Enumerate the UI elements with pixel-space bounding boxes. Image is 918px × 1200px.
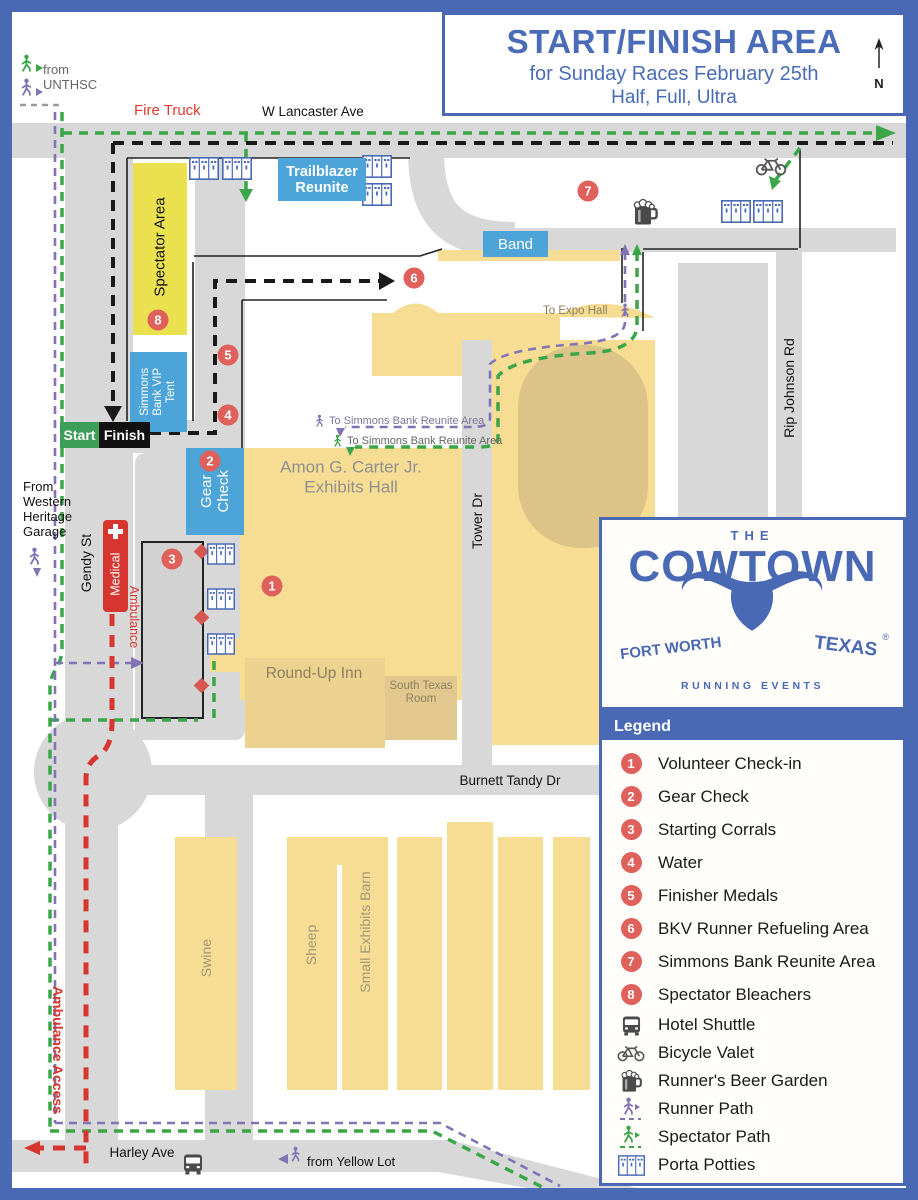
spectator-walker-icon — [23, 55, 31, 71]
legend-marker-7: 7 — [621, 951, 642, 972]
map-marker-6: 6 — [404, 268, 425, 289]
map-marker-3: 3 — [162, 549, 183, 570]
legend-marker-8: 8 — [621, 984, 642, 1005]
map-marker-5: 5 — [218, 345, 239, 366]
legend-label: Gear Check — [658, 787, 749, 807]
from-western-heritage-label: From Western Heritage Garage — [23, 480, 72, 540]
spectator-path-icon — [619, 1125, 643, 1149]
legend-marker-3: 3 — [621, 819, 642, 840]
street-harley: Harley Ave — [109, 1145, 174, 1161]
runner-walker-icon — [23, 79, 31, 95]
legend-label: Spectator Path — [658, 1127, 770, 1147]
legend: Legend 1 Volunteer Check-in 2 Gear Check… — [599, 710, 906, 1186]
small-exhibits-barn-label: Small Exhibits Barn — [357, 871, 373, 992]
logo-registered: ® — [882, 632, 889, 642]
spectator-walker-icon — [335, 435, 340, 447]
legend-item-spectator-bleachers: 8 Spectator Bleachers — [602, 978, 903, 1011]
legend-item-bicycle-valet: Bicycle Valet — [602, 1039, 903, 1067]
runner-path-icon — [619, 1097, 643, 1121]
legend-item-volunteer-checkin: 1 Volunteer Check-in — [602, 747, 903, 780]
page-title: START/FINISH AREA — [445, 23, 903, 61]
logo-state: TEXAS — [813, 632, 879, 662]
ambulance-label: Ambulance — [127, 586, 141, 649]
roundup-inn-label: Round-Up Inn — [266, 665, 363, 683]
from-unthsc-label: from UNTHSC — [43, 63, 97, 93]
legend-label: Starting Corrals — [658, 820, 776, 840]
map-marker-7: 7 — [578, 181, 599, 202]
start-box: Start — [60, 422, 99, 448]
legend-label: BKV Runner Refueling Area — [658, 919, 869, 939]
sheep-barn-label: Sheep — [303, 925, 319, 965]
trailblazer-reunite-box: Trailblazer Reunite — [278, 158, 366, 201]
band-box: Band — [483, 231, 548, 257]
legend-header: Legend — [602, 713, 903, 740]
page-subtitle-races: Half, Full, Ultra — [445, 87, 903, 109]
legend-label: Porta Potties — [658, 1155, 755, 1175]
legend-label: Volunteer Check-in — [658, 754, 802, 774]
gear-check-label: Gear Check — [198, 470, 233, 513]
medical-cross-icon — [107, 523, 124, 540]
runner-walker-icon — [31, 548, 39, 564]
legend-marker-6: 6 — [621, 918, 642, 939]
legend-item-simmons-reunite: 7 Simmons Bank Reunite Area — [602, 945, 903, 978]
north-compass: N — [871, 37, 887, 91]
legend-label: Simmons Bank Reunite Area — [658, 952, 875, 972]
simmons-vip-tent-box: Simmons Bank VIP Tent — [130, 352, 187, 432]
legend-item-hotel-shuttle: Hotel Shuttle — [602, 1011, 903, 1039]
legend-marker-5: 5 — [621, 885, 642, 906]
swine-barn-label: Swine — [198, 939, 214, 977]
legend-label: Spectator Bleachers — [658, 985, 811, 1005]
street-burnett: Burnett Tandy Dr — [459, 773, 560, 789]
beer-garden-icon — [634, 200, 656, 225]
street-lancaster: W Lancaster Ave — [262, 104, 364, 120]
spectator-area-label: Spectator Area — [151, 197, 168, 296]
to-simmons-runner-label: To Simmons Bank Reunite Area — [329, 415, 484, 428]
compass-n-label: N — [871, 76, 887, 91]
street-gendy: Gendy St — [78, 534, 94, 592]
legend-label: Runner Path — [658, 1099, 753, 1119]
street-tower: Tower Dr — [469, 493, 485, 549]
legend-item-spectator-path: Spectator Path — [602, 1123, 903, 1151]
north-arrow-icon — [871, 37, 887, 73]
legend-label: Water — [658, 853, 703, 873]
amon-carter-hall-label: Amon G. Carter Jr. Exhibits Hall — [280, 457, 422, 496]
map-marker-2: 2 — [200, 451, 221, 472]
cowtown-logo-box: THE COWTOWN FORT WORTH TEXAS ® RUNNING E… — [599, 517, 906, 710]
porta-potties-icon — [618, 1155, 645, 1176]
logo-the: THE — [731, 528, 775, 543]
legend-label: Hotel Shuttle — [658, 1015, 755, 1035]
runner-walker-icon — [317, 415, 322, 427]
to-simmons-spectator-label: To Simmons Bank Reunite Area — [347, 435, 502, 448]
legend-marker-4: 4 — [621, 852, 642, 873]
finish-box: Finish — [99, 422, 150, 448]
legend-marker-2: 2 — [621, 786, 642, 807]
medical-label: Medical — [108, 552, 122, 595]
legend-item-finisher-medals: 5 Finisher Medals — [602, 879, 903, 912]
simmons-vip-tent-label: Simmons Bank VIP Tent — [139, 368, 179, 416]
logo-city: FORT WORTH — [619, 634, 722, 663]
legend-item-porta-potties: Porta Potties — [602, 1151, 903, 1179]
legend-label: Finisher Medals — [658, 886, 778, 906]
page-subtitle: for Sunday Races February 25th — [445, 63, 903, 86]
legend-item-water: 4 Water — [602, 846, 903, 879]
event-map-page: START/FINISH AREA for Sunday Races Febru… — [0, 0, 918, 1200]
legend-marker-1: 1 — [621, 753, 642, 774]
fire-truck-label: Fire Truck — [134, 102, 201, 119]
hotel-shuttle-icon — [184, 1155, 202, 1175]
map-marker-1: 1 — [262, 576, 283, 597]
street-rip-johnson: Rip Johnson Rd — [781, 338, 797, 438]
beer-mug-icon — [620, 1069, 642, 1093]
title-box: START/FINISH AREA for Sunday Races Febru… — [442, 12, 906, 116]
ambulance-access-label: Ambulance Access — [50, 986, 66, 1114]
bus-icon — [622, 1015, 641, 1036]
legend-item-gear-check: 2 Gear Check — [602, 780, 903, 813]
legend-label: Bicycle Valet — [658, 1043, 754, 1063]
bicycle-valet-icon — [757, 159, 786, 175]
from-yellow-lot-label: from Yellow Lot — [307, 1155, 395, 1170]
south-texas-room-label: South Texas Room — [389, 680, 452, 706]
legend-item-starting-corrals: 3 Starting Corrals — [602, 813, 903, 846]
map-marker-4: 4 — [218, 405, 239, 426]
logo-tagline: RUNNING EVENTS — [681, 680, 824, 692]
legend-item-beer-garden: Runner's Beer Garden — [602, 1067, 903, 1095]
map-marker-8: 8 — [148, 310, 169, 331]
legend-item-runner-path: Runner Path — [602, 1095, 903, 1123]
legend-item-bkv-refueling: 6 BKV Runner Refueling Area — [602, 912, 903, 945]
logo-name: COWTOWN — [628, 542, 876, 592]
legend-label: Runner's Beer Garden — [658, 1071, 828, 1091]
to-expo-hall-label: To Expo Hall — [543, 305, 608, 318]
bicycle-icon — [617, 1044, 645, 1062]
